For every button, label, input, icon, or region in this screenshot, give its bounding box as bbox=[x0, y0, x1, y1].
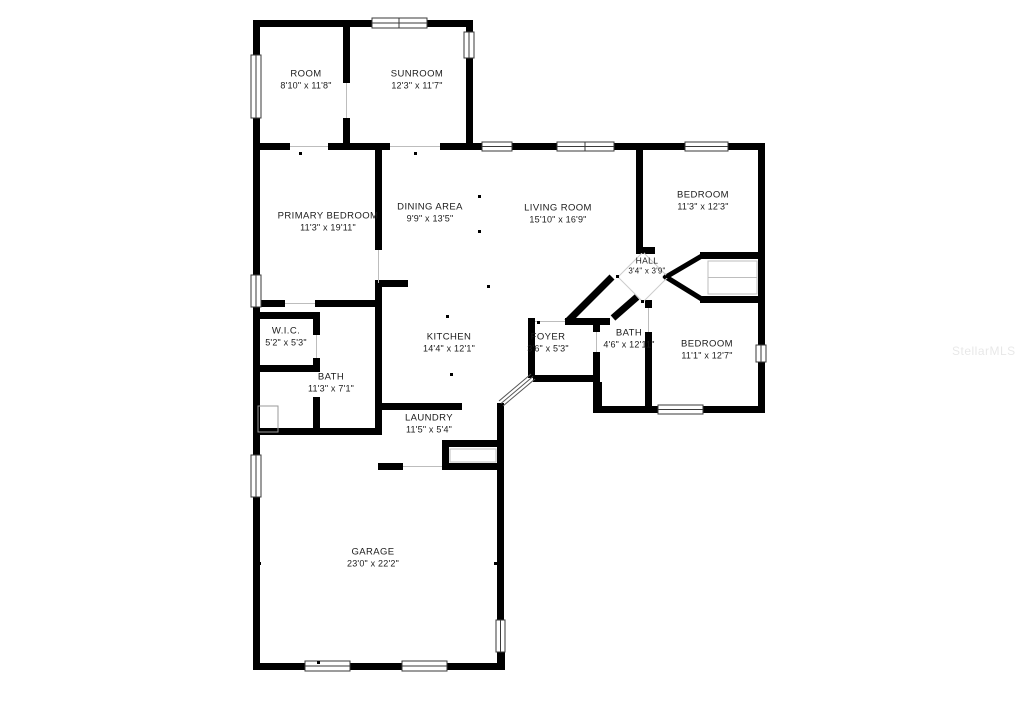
room-name: BATH bbox=[603, 327, 654, 339]
room-label-kitchen: KITCHEN 14'4" x 12'1" bbox=[423, 331, 475, 354]
room-dims: 5'2" x 5'3" bbox=[265, 337, 307, 348]
room-dims: 15'10" x 16'9" bbox=[524, 214, 592, 225]
room-name: DINING AREA bbox=[397, 201, 463, 213]
room-label-sunroom: SUNROOM 12'3" x 11'7" bbox=[391, 68, 443, 91]
room-name: PRIMARY BEDROOM bbox=[278, 210, 379, 222]
room-dims: 3'4" x 3'9" bbox=[628, 266, 665, 276]
room-dims: 3'6" x 5'3" bbox=[527, 343, 569, 354]
diagonal-walls bbox=[567, 277, 637, 322]
room-dims: 9'9" x 13'5" bbox=[397, 213, 463, 224]
room-label-primary-bedroom: PRIMARY BEDROOM 11'3" x 19'11" bbox=[278, 210, 379, 233]
room-name: SUNROOM bbox=[391, 68, 443, 80]
floor-plan-drawing bbox=[0, 0, 1024, 716]
room-dims: 11'3" x 7'1" bbox=[308, 383, 354, 394]
room-label-living-room: LIVING ROOM 15'10" x 16'9" bbox=[524, 202, 592, 225]
room-label-foyer: FOYER 3'6" x 5'3" bbox=[527, 331, 569, 354]
room-name: HALL bbox=[628, 256, 665, 267]
room-dims: 4'6" x 12'11" bbox=[603, 339, 654, 350]
room-label-bath-right: BATH 4'6" x 12'11" bbox=[603, 327, 654, 350]
room-label-hall: HALL 3'4" x 3'9" bbox=[628, 256, 665, 277]
room-dims: 8'10" x 11'8" bbox=[280, 80, 331, 91]
room-name: LIVING ROOM bbox=[524, 202, 592, 214]
room-dims: 14'4" x 12'1" bbox=[423, 343, 475, 354]
room-label-bath-left: BATH 11'3" x 7'1" bbox=[308, 371, 354, 394]
closet-door-leaves bbox=[666, 257, 700, 298]
room-label-dining-area: DINING AREA 9'9" x 13'5" bbox=[397, 201, 463, 224]
room-label-wic: W.I.C. 5'2" x 5'3" bbox=[265, 325, 307, 348]
room-name: LAUNDRY bbox=[405, 412, 453, 424]
room-label-laundry: LAUNDRY 11'5" x 5'4" bbox=[405, 412, 453, 435]
room-name: GARAGE bbox=[347, 546, 399, 558]
room-label-room: ROOM 8'10" x 11'8" bbox=[280, 68, 331, 91]
room-dims: 11'1" x 12'7" bbox=[681, 350, 733, 361]
room-label-garage: GARAGE 23'0" x 22'2" bbox=[347, 546, 399, 569]
room-dims: 11'3" x 19'11" bbox=[278, 222, 379, 233]
watermark: StellarMLS bbox=[952, 344, 1016, 358]
room-dims: 23'0" x 22'2" bbox=[347, 558, 399, 569]
room-name: BEDROOM bbox=[681, 338, 733, 350]
room-name: FOYER bbox=[527, 331, 569, 343]
room-dims: 11'5" x 5'4" bbox=[405, 424, 453, 435]
floor-plan: ROOM 8'10" x 11'8" SUNROOM 12'3" x 11'7"… bbox=[0, 0, 1024, 716]
front-entry-glazing bbox=[499, 374, 535, 406]
room-label-bedroom-upper: BEDROOM 11'3" x 12'3" bbox=[677, 189, 729, 212]
room-dims: 12'3" x 11'7" bbox=[391, 80, 443, 91]
room-name: BATH bbox=[308, 371, 354, 383]
room-name: W.I.C. bbox=[265, 325, 307, 337]
room-name: KITCHEN bbox=[423, 331, 475, 343]
room-name: ROOM bbox=[280, 68, 331, 80]
room-name: BEDROOM bbox=[677, 189, 729, 201]
room-dims: 11'3" x 12'3" bbox=[677, 201, 729, 212]
room-label-bedroom-lower: BEDROOM 11'1" x 12'7" bbox=[681, 338, 733, 361]
